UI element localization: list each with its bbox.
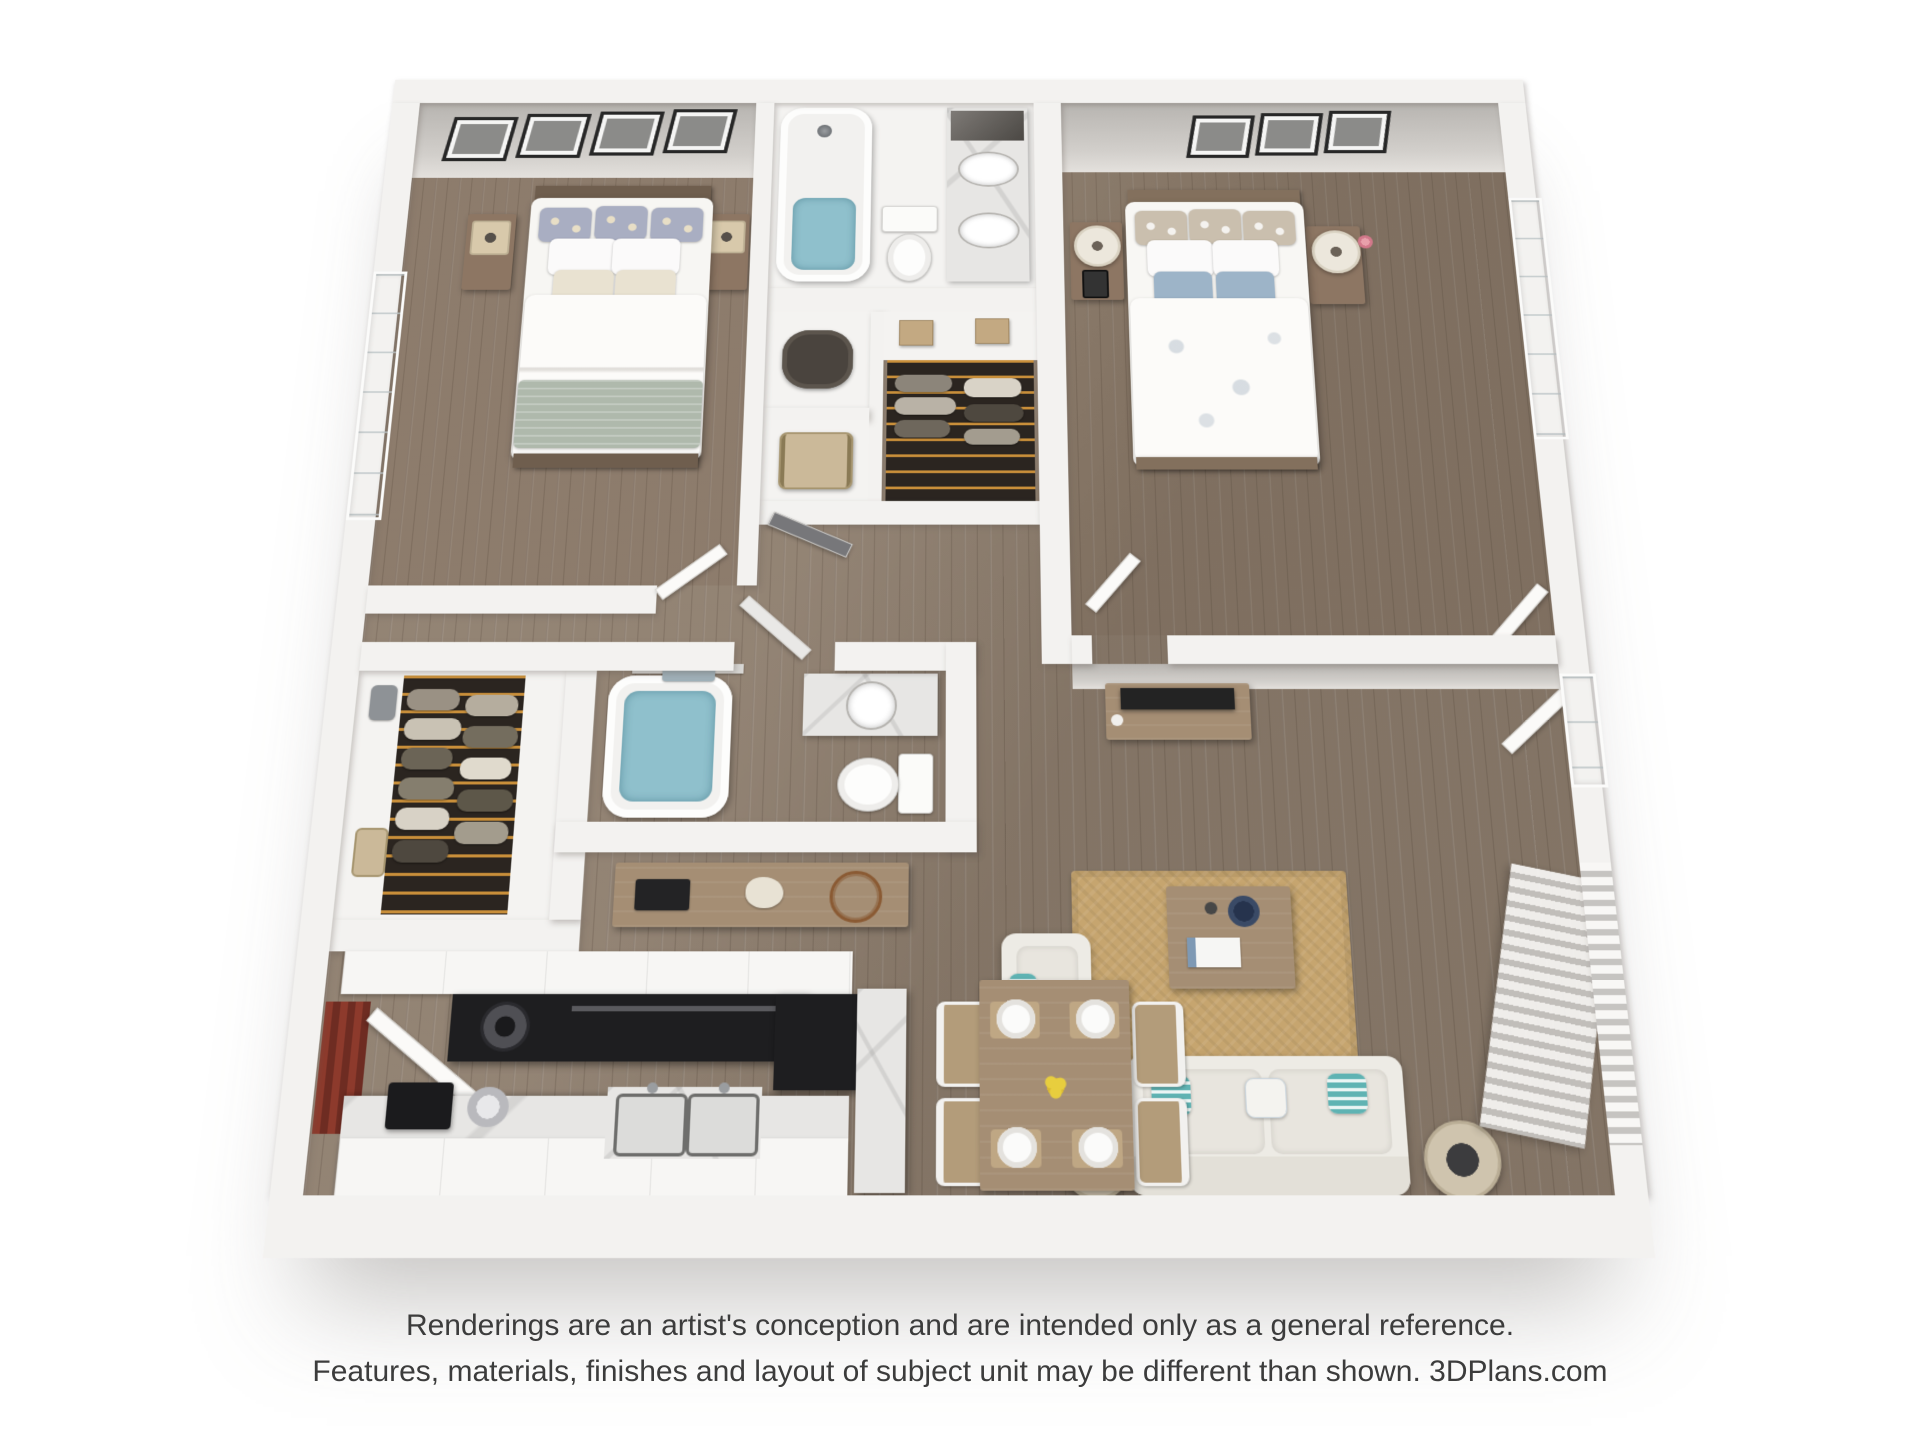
bedroom-2-window	[1508, 198, 1569, 439]
interior-wall	[365, 585, 657, 613]
interior-wall	[737, 103, 775, 585]
walls	[263, 80, 1655, 1258]
interior-wall	[1072, 635, 1093, 664]
disclaimer-line-2: Features, materials, finishes and layout…	[0, 1349, 1920, 1395]
living-room-window	[1559, 674, 1608, 788]
exterior-wall-top	[393, 80, 1526, 103]
interior-wall	[1167, 635, 1558, 664]
living-room-blinds-window	[1579, 863, 1642, 1146]
disclaimer-line-1: Renderings are an artist's conception an…	[0, 1303, 1920, 1349]
interior-wall	[359, 642, 734, 671]
exterior-wall-bottom	[263, 1195, 1655, 1258]
interior-wall	[554, 822, 977, 853]
interior-wall	[1034, 103, 1073, 664]
bedroom-1-window	[346, 272, 408, 521]
bedroom-1-door	[655, 544, 728, 600]
page: Renderings are an artist's conception an…	[0, 0, 1920, 1440]
disclaimer-caption: Renderings are an artist's conception an…	[0, 1303, 1920, 1395]
floorplan-3d-render	[263, 80, 1655, 1258]
